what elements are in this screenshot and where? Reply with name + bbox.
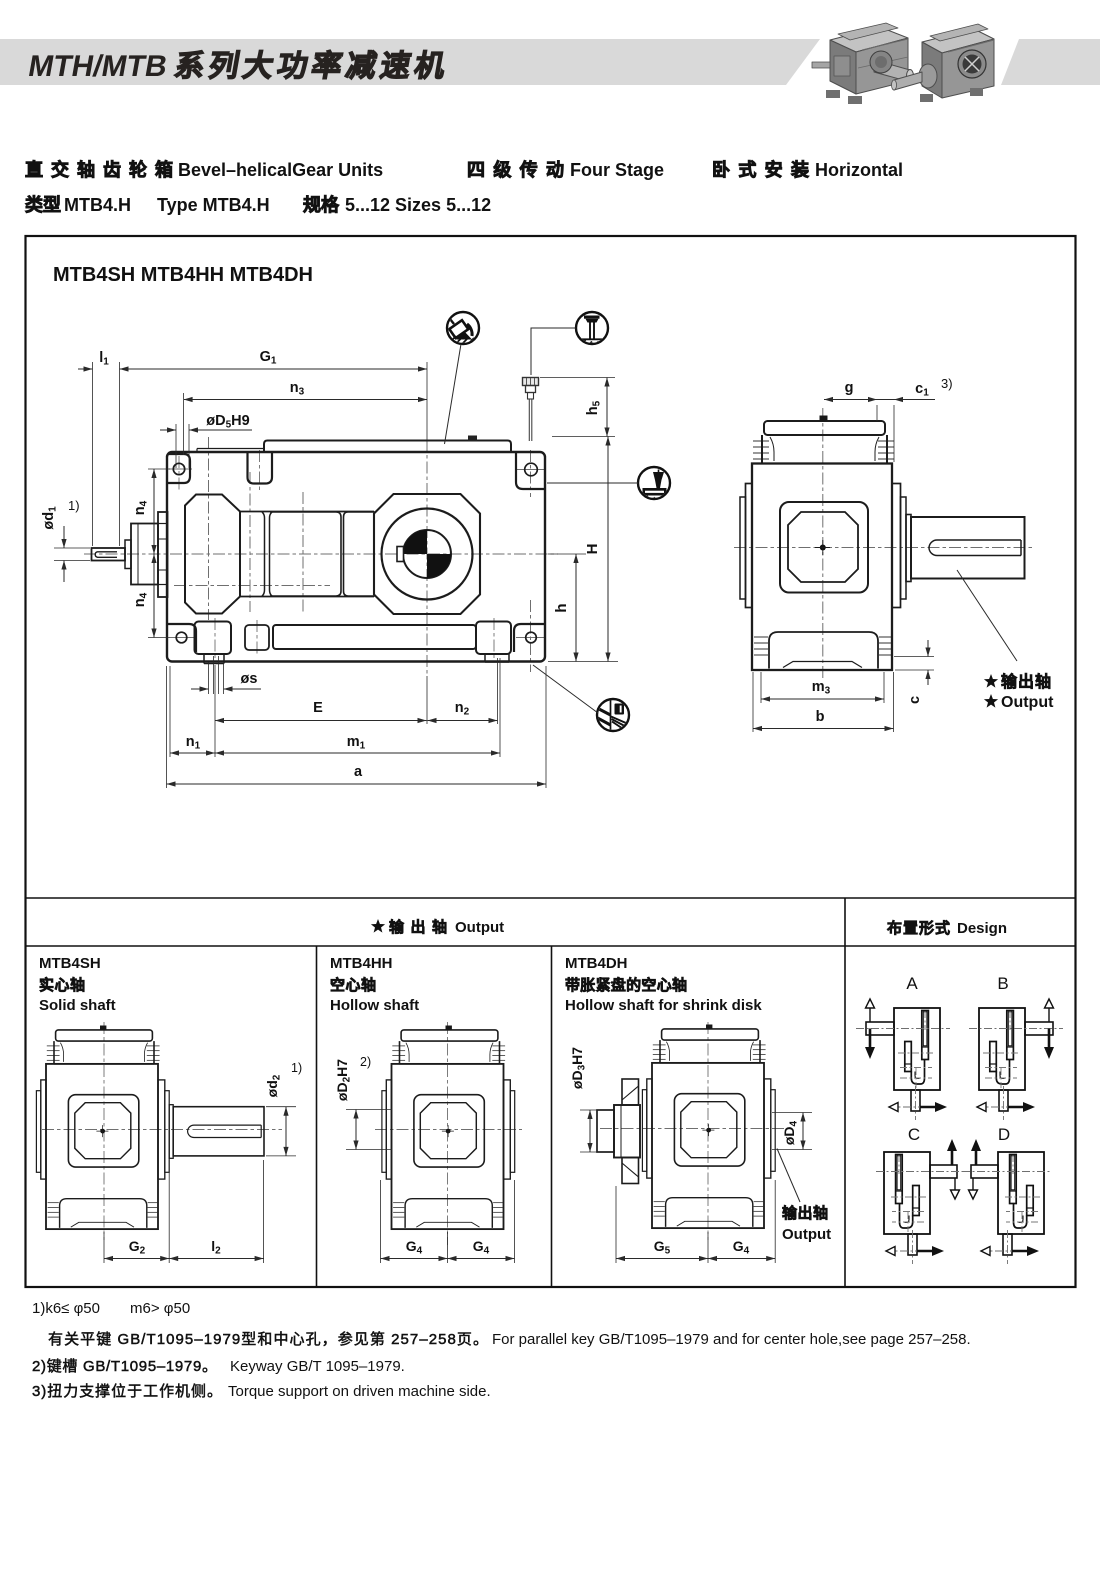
svg-text:A: A	[906, 974, 918, 993]
svg-text:输出轴: 输出轴	[1001, 672, 1051, 691]
svg-text:Solid shaft: Solid shaft	[39, 997, 116, 1014]
svg-text:规格: 规格	[303, 194, 340, 215]
svg-text:空心轴: 空心轴	[330, 976, 376, 994]
svg-text:MTB4DH: MTB4DH	[565, 955, 628, 972]
svg-text:1)k6≤ φ50: 1)k6≤ φ50	[32, 1300, 100, 1317]
svg-text:Hollow shaft: Hollow shaft	[330, 997, 419, 1014]
svg-text:类型: 类型	[25, 194, 61, 215]
svg-text:Four Stage: Four Stage	[570, 160, 664, 180]
svg-text:MTB4HH: MTB4HH	[330, 955, 393, 972]
svg-text:Torque support on driven machi: Torque support on driven machine side.	[228, 1383, 491, 1400]
svg-text:b: b	[816, 709, 825, 725]
svg-text:Output: Output	[455, 919, 504, 936]
svg-text:Design: Design	[957, 920, 1007, 937]
svg-text:Type MTB4.H: Type MTB4.H	[157, 195, 270, 215]
svg-text:3): 3)	[941, 376, 953, 391]
svg-text:Output: Output	[1001, 694, 1054, 711]
svg-text:带胀紧盘的空心轴: 带胀紧盘的空心轴	[565, 976, 687, 994]
svg-text:c: c	[907, 696, 923, 704]
svg-text:有关平键 GB/T1095–1979型和中心孔，参见第 25: 有关平键 GB/T1095–1979型和中心孔，参见第 257–258页。	[48, 1330, 488, 1348]
svg-text:Horizontal: Horizontal	[815, 160, 903, 180]
svg-text:2): 2)	[360, 1055, 371, 1069]
svg-text:For parallel key GB/T1095–1979: For parallel key GB/T1095–1979 and for c…	[492, 1331, 971, 1348]
svg-text:D: D	[998, 1125, 1010, 1144]
svg-text:实心轴: 实心轴	[39, 976, 85, 994]
svg-text:输出轴: 输出轴	[389, 918, 447, 936]
svg-text:H: H	[584, 544, 601, 555]
svg-text:g: g	[845, 380, 854, 396]
svg-text:m6> φ50: m6> φ50	[130, 1300, 190, 1317]
svg-text:B: B	[997, 974, 1008, 993]
svg-text:Hollow shaft for shrink disk: Hollow shaft for shrink disk	[565, 997, 762, 1014]
svg-text:Keyway GB/T 1095–1979.: Keyway GB/T 1095–1979.	[230, 1358, 405, 1375]
svg-text:布置形式: 布置形式	[887, 919, 950, 937]
svg-text:3)扭力支撑位于工作机侧。: 3)扭力支撑位于工作机侧。	[32, 1383, 222, 1400]
svg-text:MTB4SH: MTB4SH	[39, 955, 101, 972]
svg-text:Bevel–helicalGear Units: Bevel–helicalGear Units	[178, 160, 383, 180]
svg-text:输出轴: 输出轴	[782, 1204, 828, 1222]
svg-text:5...12 Sizes 5...12: 5...12 Sizes 5...12	[345, 195, 491, 215]
svg-text:MTH/MTB: MTH/MTB	[26, 50, 170, 83]
svg-text:C: C	[908, 1125, 920, 1144]
svg-text:E: E	[313, 700, 323, 716]
svg-text:1): 1)	[291, 1061, 302, 1075]
svg-text:MTB4SH MTB4HH MTB4DH: MTB4SH MTB4HH MTB4DH	[53, 264, 313, 286]
svg-text:h: h	[553, 603, 570, 612]
svg-text:a: a	[354, 764, 363, 780]
svg-text:2)键槽 GB/T1095–1979。: 2)键槽 GB/T1095–1979。	[32, 1358, 217, 1375]
svg-text:1): 1)	[68, 498, 80, 513]
svg-text:Output: Output	[782, 1226, 831, 1243]
svg-text:øs: øs	[241, 671, 258, 687]
svg-text:MTB4.H: MTB4.H	[64, 195, 131, 215]
